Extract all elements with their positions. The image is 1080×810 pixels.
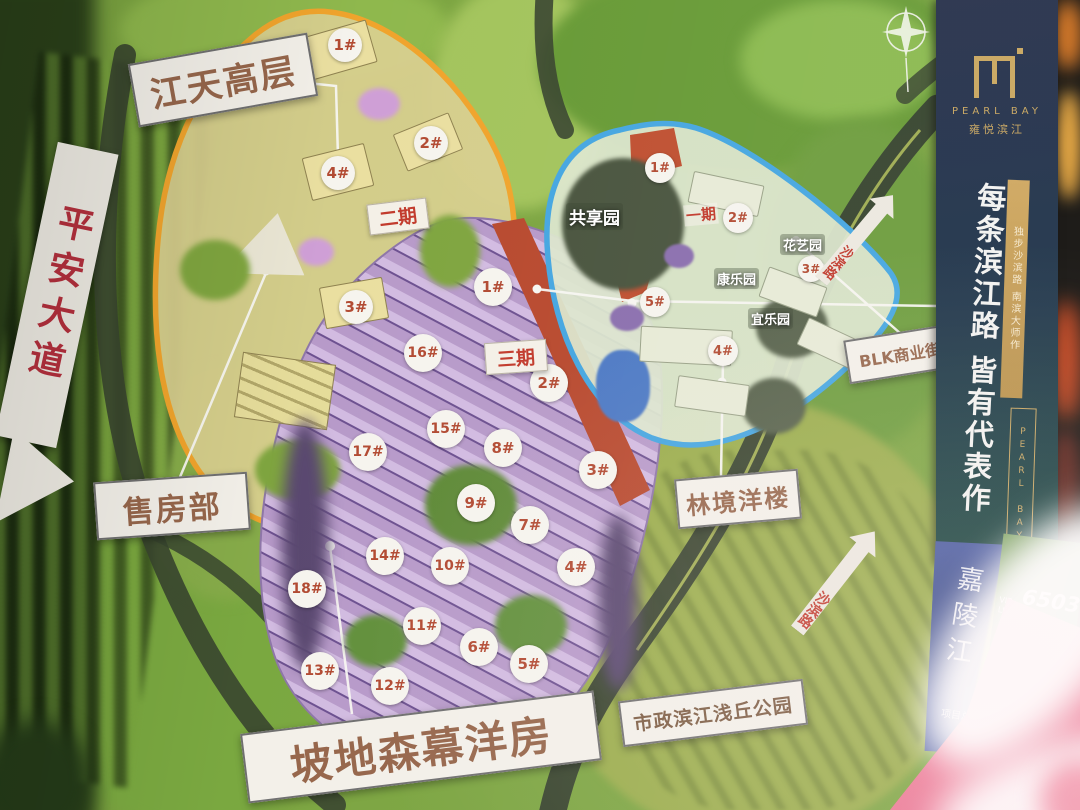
building-marker: 2# [414, 126, 448, 160]
tree-line [598, 515, 638, 690]
garden-label: 康乐园 [714, 268, 759, 289]
building-marker: 2# [723, 203, 753, 233]
building-marker: 1# [474, 268, 512, 306]
shrub [610, 305, 644, 331]
garden-label: 宜乐园 [748, 308, 793, 329]
phase3-tag: 三期 [484, 339, 548, 375]
blossom-tree [358, 88, 400, 120]
building-marker: 11# [403, 607, 441, 645]
tree-canopy [180, 240, 250, 300]
master-plan-map: 1# 2# 4# 3# 1# 2# 3# 5# 4# 1# 16# 2# 15#… [0, 0, 945, 810]
shrub [664, 244, 694, 268]
blossom-tree [298, 238, 334, 266]
building-marker: 3# [579, 451, 617, 489]
building-marker: 3# [339, 290, 373, 324]
building-marker: 4# [321, 156, 355, 190]
building-marker: 5# [640, 287, 670, 317]
sign-sales-office: 售房部 [93, 472, 251, 541]
building-marker: 16# [404, 334, 442, 372]
parking-rows [234, 352, 336, 430]
brand-name-cn: 雍悦滨江 [936, 121, 1058, 137]
building-marker: 9# [457, 484, 495, 522]
phase1-tag: 一期 [683, 203, 719, 227]
garden-label: 花艺园 [780, 234, 825, 255]
building-marker: 4# [557, 548, 595, 586]
bokeh-glow [1056, 90, 1080, 200]
tagline-text: 独步沙滨路 南滨大师作 [1005, 226, 1024, 352]
site-plan-poster-photo: 1# 2# 4# 3# 1# 2# 3# 5# 4# 1# 16# 2# 15#… [0, 0, 1080, 810]
building-marker: 7# [511, 506, 549, 544]
building-marker: 10# [431, 547, 469, 585]
brand-panel: PEARL BAY 雍悦滨江 每条滨江路 皆有代表作 独步沙滨路 南滨大师作 P… [936, 0, 1058, 565]
building-marker: 1# [645, 153, 675, 183]
building-marker: 13# [301, 652, 339, 690]
building-marker: 6# [460, 628, 498, 666]
tree-line [282, 420, 328, 670]
pearl-bay-logo-icon [970, 48, 1024, 104]
garden-label: 共享园 [566, 203, 623, 230]
building-marker: 17# [349, 433, 387, 471]
building-marker: 5# [510, 645, 548, 683]
road [544, 0, 565, 130]
building-marker: 12# [371, 667, 409, 705]
building-marker: 14# [366, 537, 404, 575]
brand-name-en: PEARL BAY [936, 106, 1058, 117]
vertical-brand-text: PEARL BAY [1014, 426, 1028, 543]
building-marker: 4# [708, 336, 738, 366]
tree-canopy [345, 615, 407, 667]
building-marker: 15# [427, 410, 465, 448]
tree-canopy [742, 378, 806, 434]
building-marker: 18# [288, 570, 326, 608]
building-marker: 1# [328, 28, 362, 62]
building-marker: 8# [484, 429, 522, 467]
